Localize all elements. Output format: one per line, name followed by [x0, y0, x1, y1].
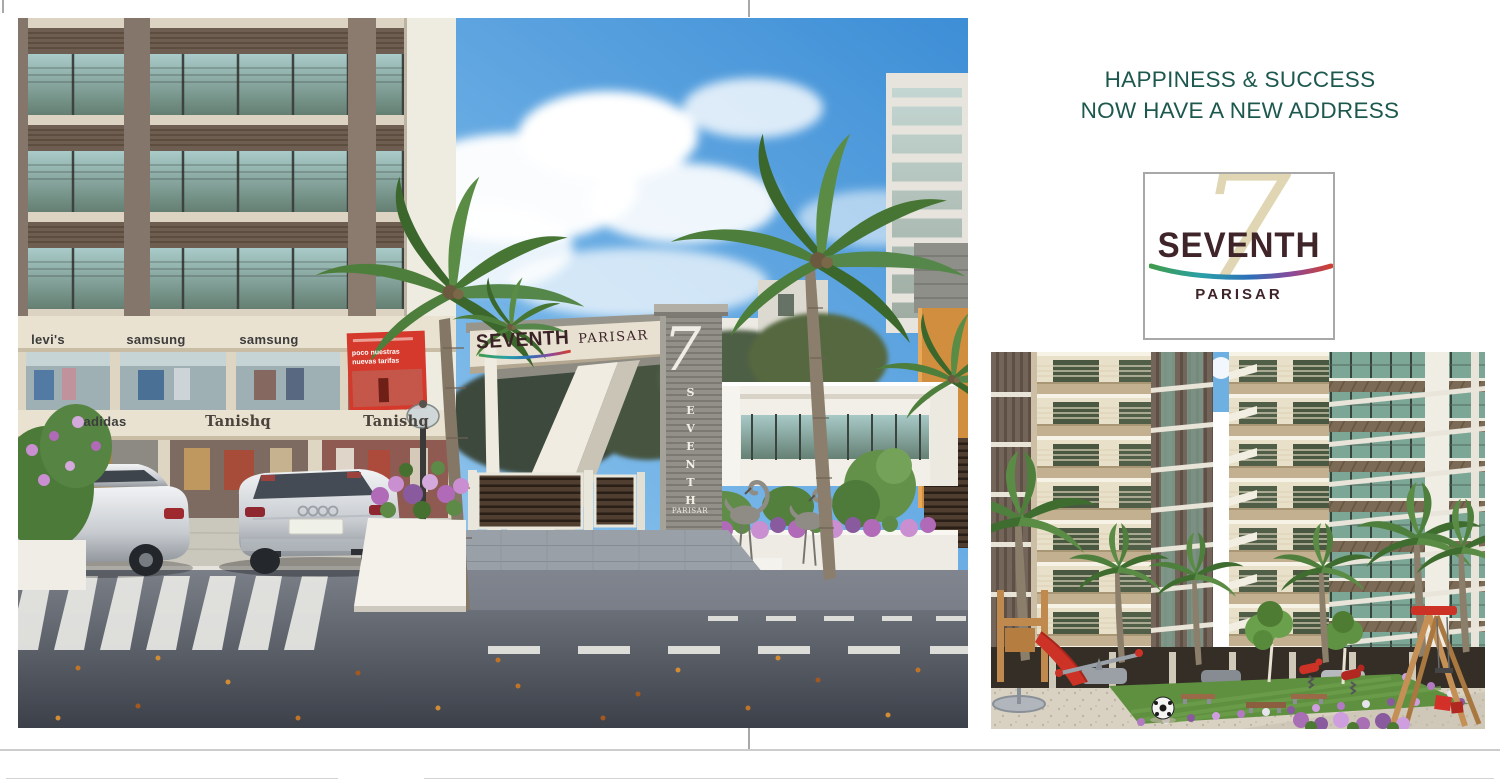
storefronts-upper — [18, 352, 348, 410]
pillar-vertical-text: SEVENTH — [684, 386, 697, 510]
brochure-page: levi's samsung samsung adidas Tanishq Ta… — [0, 0, 1500, 781]
pillar-numeral: 7 — [663, 320, 701, 380]
entrance-scene — [18, 18, 968, 728]
logo-name: SEVENTH — [1145, 224, 1333, 265]
shop-sign-samsung-2: samsung — [230, 332, 308, 347]
logo-badge: 7 SEVENTH PARISAR — [1143, 172, 1335, 340]
billboard-text: poco nuestras nuevas tarifas — [352, 347, 423, 367]
crop-mark-top-left — [2, 0, 4, 13]
headline: HAPPINESS & SUCCESS NOW HAVE A NEW ADDRE… — [1055, 64, 1425, 126]
headline-line2: NOW HAVE A NEW ADDRESS — [1055, 95, 1425, 126]
fold-line — [0, 749, 1500, 751]
courtyard-scene — [991, 352, 1485, 729]
tower-mid — [1151, 352, 1213, 662]
shop-sign-levis: levi's — [20, 332, 76, 347]
crop-mark-bottom-center — [748, 728, 750, 750]
shop-sign-tanishq-2: Tanishq — [356, 413, 436, 430]
shop-sign-adidas: adidas — [70, 414, 140, 429]
logo-subtitle: PARISAR — [1145, 286, 1333, 303]
courtyard-render — [991, 352, 1485, 729]
shop-sign-tanishq-1: Tanishq — [198, 413, 278, 430]
headline-line1: HAPPINESS & SUCCESS — [1055, 64, 1425, 95]
entry-gates — [468, 470, 645, 532]
gate-sign-secondary: PARISAR — [578, 328, 649, 347]
road — [18, 570, 968, 728]
shop-sign-samsung-1: samsung — [119, 332, 193, 347]
next-page-edge-right — [424, 778, 1494, 779]
next-page-edge-left — [6, 778, 338, 779]
entrance-street-render: levi's samsung samsung adidas Tanishq Ta… — [18, 18, 968, 728]
crop-mark-top-center — [748, 0, 750, 17]
pillar-base-text: PARISAR — [665, 506, 714, 515]
